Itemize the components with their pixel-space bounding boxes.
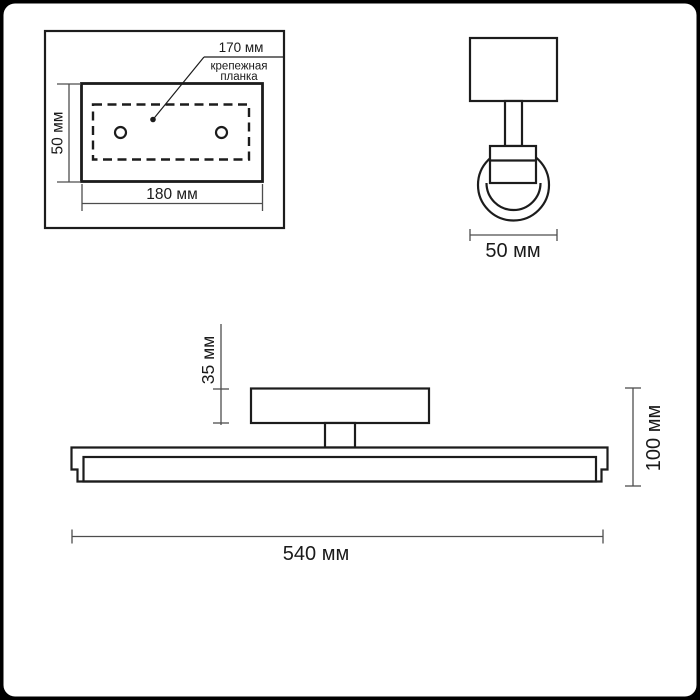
plate-width-dim-label: 180 мм [146, 186, 197, 203]
overall-width-dim-label: 540 мм [283, 543, 349, 565]
sheet-frame [2, 2, 698, 698]
overall-height-dim-label: 100 мм [643, 405, 665, 471]
callout-text-line2: планка [220, 71, 258, 83]
front-stem [325, 423, 355, 448]
callout-dimension-label: 170 мм [219, 40, 264, 55]
front-bar-outline [72, 448, 608, 482]
canopy-height-dim-label: 35 мм [198, 336, 218, 384]
side-bracket [490, 146, 536, 183]
side-width-dim-label: 50 мм [485, 240, 540, 262]
technical-drawing-canvas: 170 мм крепежная планка 50 мм 180 мм 50 … [0, 0, 700, 700]
side-stem [505, 101, 522, 146]
plate-height-dim-label: 50 мм [49, 112, 66, 155]
